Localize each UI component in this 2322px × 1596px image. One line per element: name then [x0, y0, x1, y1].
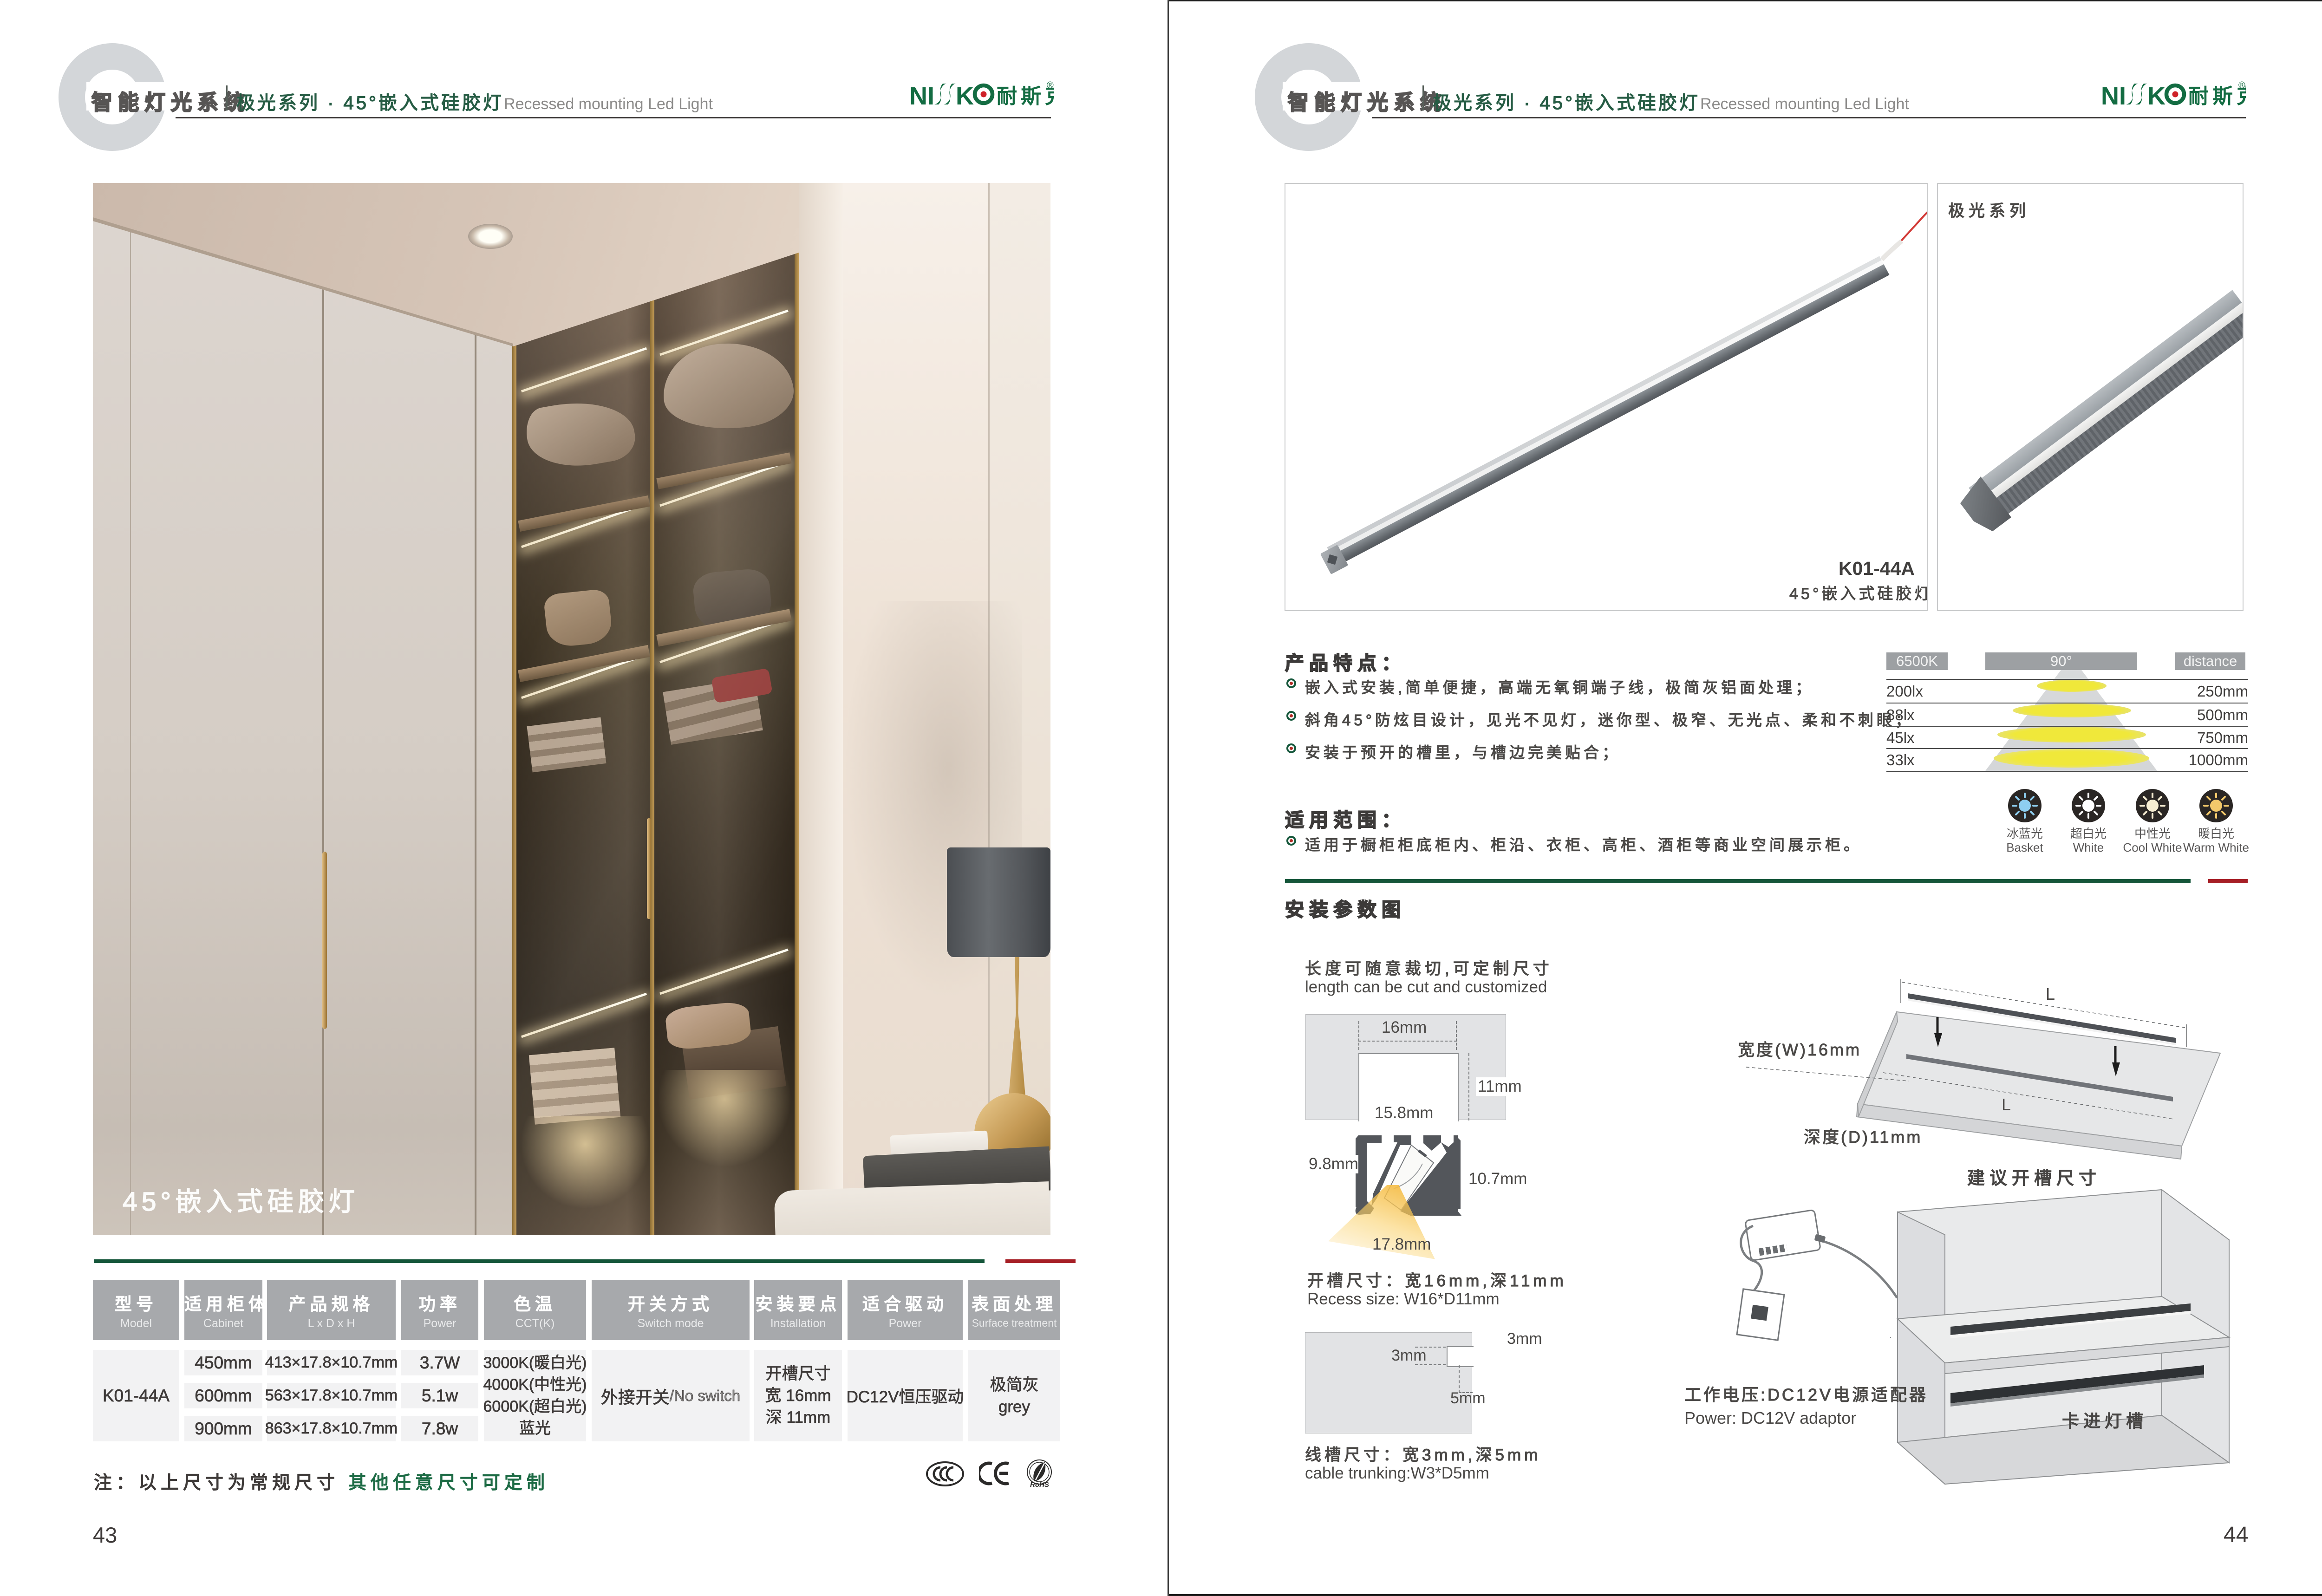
- svg-text:®: ®: [1047, 80, 1054, 91]
- svg-text:K: K: [2147, 82, 2165, 110]
- svg-text:®: ®: [2238, 80, 2245, 91]
- svg-text:NI: NI: [2101, 82, 2126, 110]
- svg-text:K: K: [956, 82, 974, 110]
- svg-text:NI: NI: [909, 82, 934, 110]
- svg-text:RoHS: RoHS: [1030, 1481, 1049, 1489]
- svg-text:耐斯克: 耐斯克: [997, 85, 1054, 108]
- svg-text:耐斯克: 耐斯克: [2188, 85, 2246, 108]
